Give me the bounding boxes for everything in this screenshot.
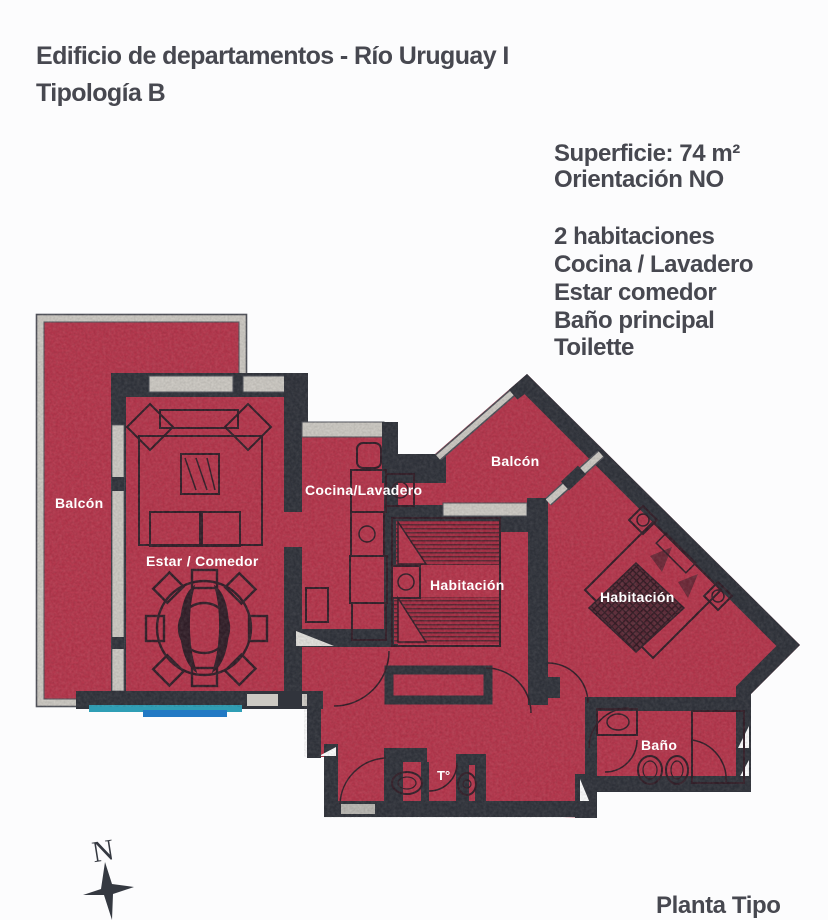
svg-text:2 habitaciones: 2 habitaciones bbox=[554, 223, 715, 250]
svg-text:T°: T° bbox=[437, 768, 450, 783]
svg-text:Estar / Comedor: Estar / Comedor bbox=[146, 553, 259, 569]
svg-text:N: N bbox=[90, 833, 117, 869]
svg-text:Baño: Baño bbox=[641, 737, 677, 753]
svg-text:Tipología B: Tipología B bbox=[36, 79, 165, 107]
svg-text:Habitación: Habitación bbox=[600, 589, 675, 605]
svg-text:Cocina/Lavadero: Cocina/Lavadero bbox=[305, 482, 422, 498]
svg-text:Cocina / Lavadero: Cocina / Lavadero bbox=[554, 251, 753, 278]
svg-text:Baño principal: Baño principal bbox=[554, 307, 714, 334]
svg-text:Balcón: Balcón bbox=[55, 495, 103, 511]
svg-text:Superficie: 74 m²: Superficie: 74 m² bbox=[554, 140, 740, 167]
svg-text:Edificio de departamentos - Rí: Edificio de departamentos - Río Uruguay … bbox=[36, 42, 509, 70]
svg-text:Orientación NO: Orientación NO bbox=[554, 166, 724, 193]
svg-text:Balcón: Balcón bbox=[491, 453, 539, 469]
svg-text:Habitación: Habitación bbox=[430, 577, 505, 593]
svg-text:Toilette: Toilette bbox=[554, 334, 634, 361]
svg-text:Estar comedor: Estar comedor bbox=[554, 279, 716, 306]
svg-text:Planta Tipo: Planta Tipo bbox=[656, 892, 781, 919]
